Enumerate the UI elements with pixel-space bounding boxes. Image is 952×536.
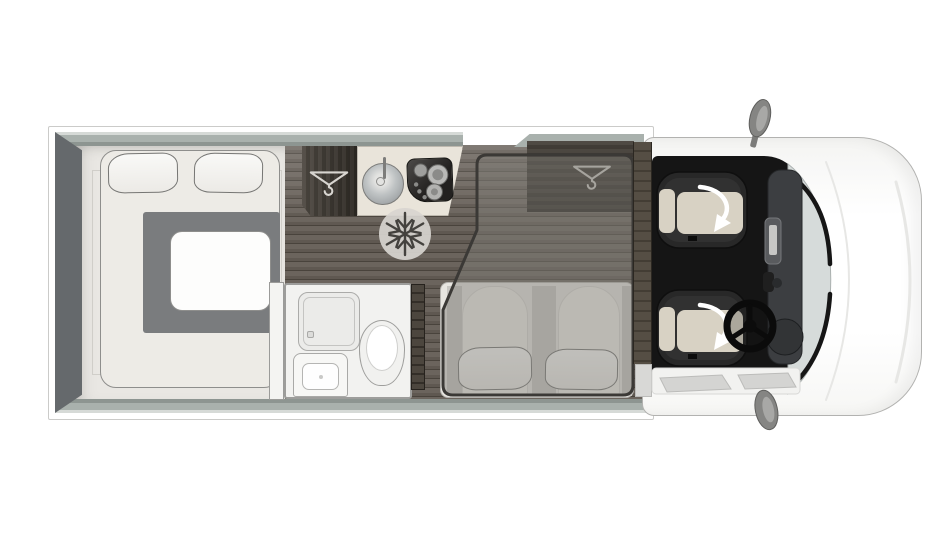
cab-step: [660, 375, 731, 392]
shower-drain: [307, 331, 314, 338]
shower-tray-inner: [303, 297, 355, 346]
faucet-knob: [376, 177, 385, 186]
bathroom-wood-wall: [411, 284, 425, 390]
wing-mirror: [751, 388, 781, 432]
toilet-seat: [366, 325, 398, 371]
shower-tray: [298, 292, 360, 351]
faucet-icon: [383, 157, 386, 179]
cab-detail: [630, 90, 950, 450]
fridge-zone: [379, 208, 431, 260]
rear-wall: [55, 132, 82, 413]
wardrobe: [302, 146, 357, 216]
steering-wheel: [727, 303, 773, 349]
drop-down-bed-overlay: [436, 148, 640, 402]
passenger-seat: [657, 172, 747, 248]
pillow: [194, 152, 264, 193]
hanger-icon: [307, 166, 351, 200]
duvet-center: [170, 231, 271, 311]
pillow: [108, 152, 179, 193]
bathroom: [284, 283, 412, 399]
washbasin-unit: [293, 353, 348, 397]
cab-step: [738, 373, 796, 389]
washbasin: [302, 363, 339, 390]
basin-drain: [319, 375, 323, 379]
top-wall: [55, 132, 463, 146]
toilet: [359, 320, 405, 386]
motorhome-floorplan: [0, 0, 952, 536]
wing-mirror: [743, 97, 774, 149]
snowflake-icon: [379, 208, 431, 260]
bathroom-partition-wall: [269, 282, 284, 400]
bumper-line: [896, 182, 910, 382]
